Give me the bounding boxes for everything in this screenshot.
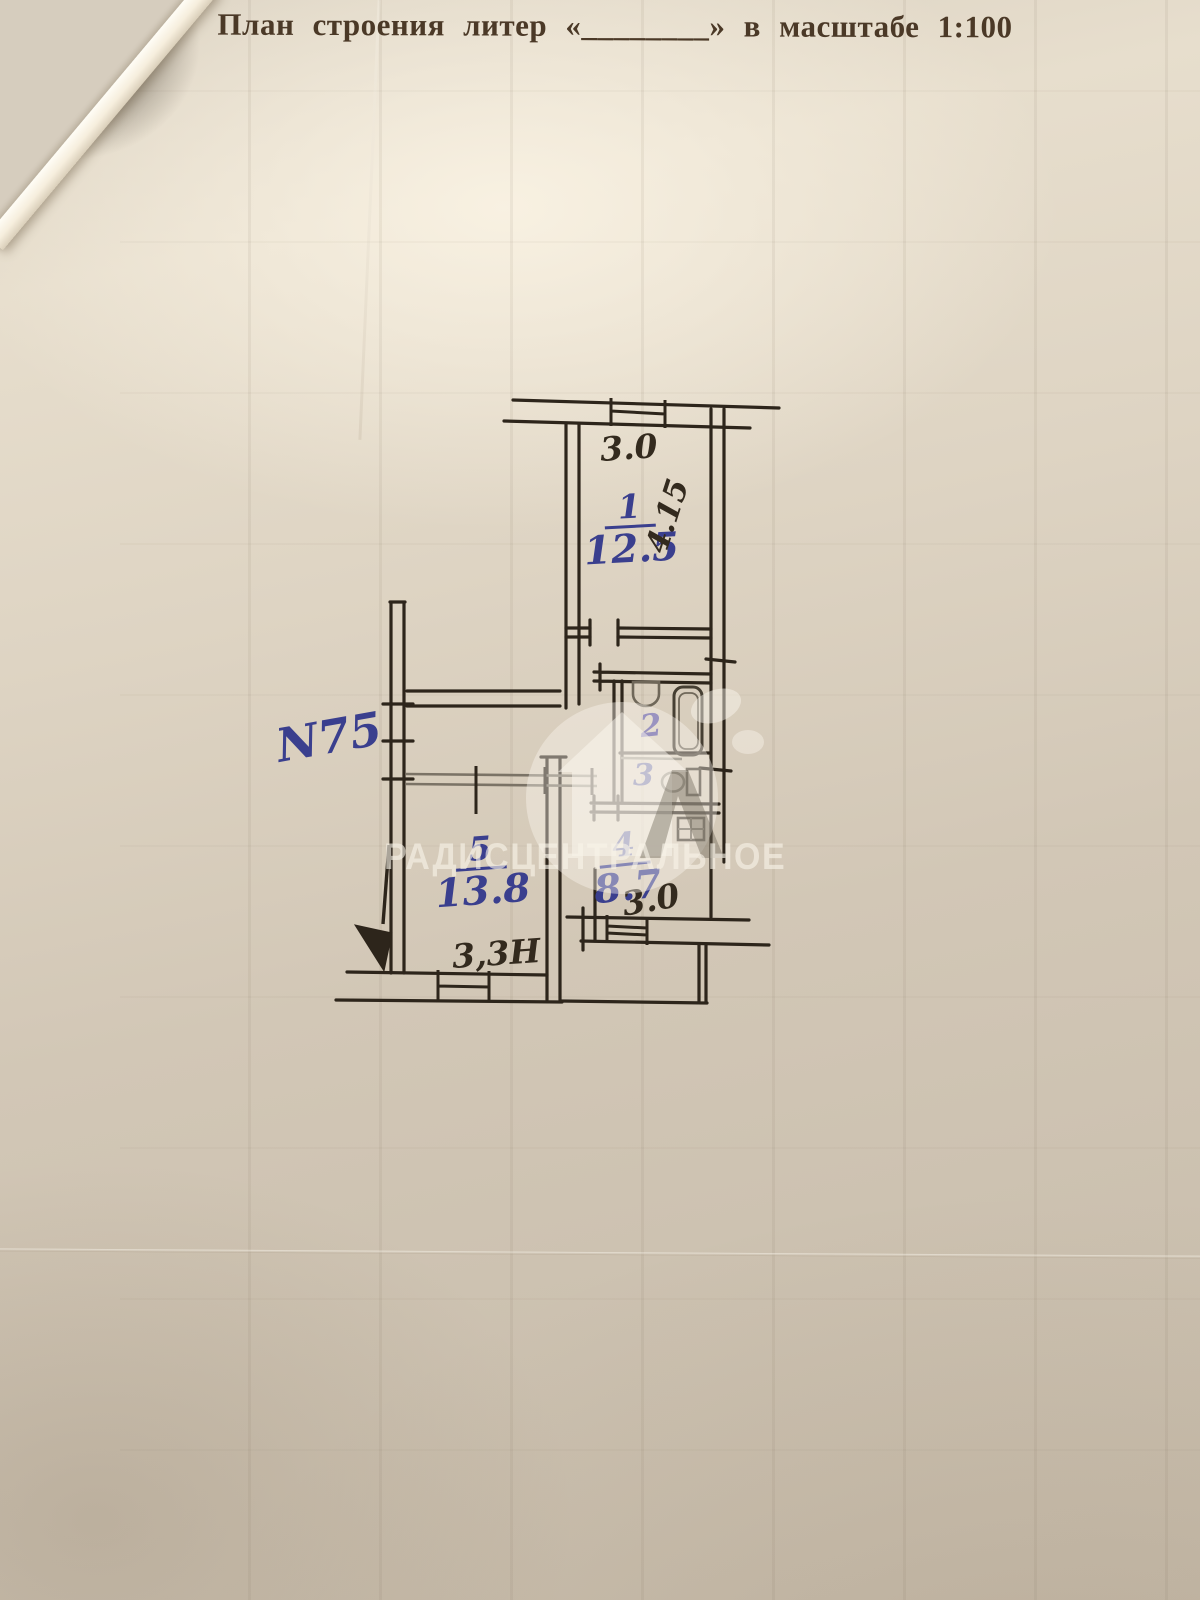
washbasin — [633, 682, 659, 706]
floor-plan-drawing — [0, 0, 1200, 1600]
room2-number: 2 — [638, 707, 663, 745]
watermark-text: РАДИСЦЕНТРАЛЬНОЕ — [384, 836, 784, 879]
bathtub — [674, 687, 702, 755]
room1-width-dim: 3.0 — [599, 426, 659, 469]
walls — [336, 400, 779, 1003]
scanned-floor-plan-page: План строения литер «________» в масштаб… — [0, 0, 1200, 1600]
room3-number: 3 — [633, 758, 654, 793]
hall-door-jambs — [476, 766, 592, 814]
room5-width-dim: 3,3Н — [451, 931, 542, 976]
toilet — [662, 769, 700, 795]
